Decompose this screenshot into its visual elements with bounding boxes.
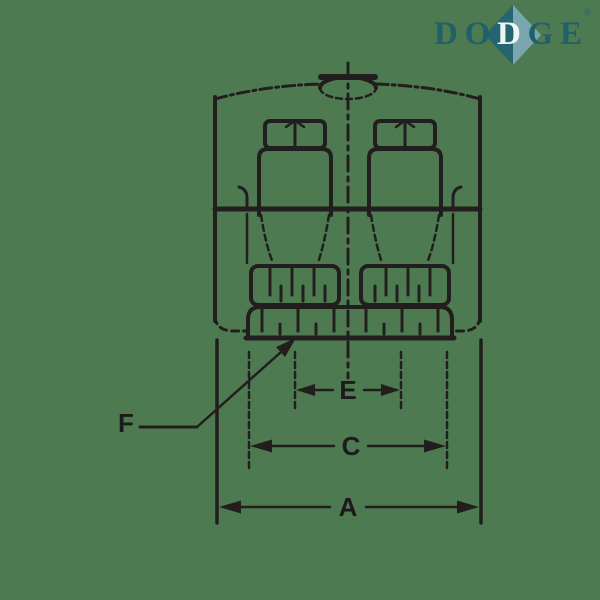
dodge-logo: D O D G E ® [434, 5, 590, 65]
dodge-wordmark: D O D G E [434, 14, 582, 54]
serrated-base-pad [246, 307, 454, 338]
arrowhead-c-left [250, 440, 272, 453]
dimension-label-e: E [339, 375, 356, 405]
arrowhead-a-left [219, 501, 241, 514]
logo-letter: D [497, 14, 521, 54]
dimension-c: C [249, 352, 447, 470]
cap-bolt-right [369, 121, 441, 263]
logo-letter: E [560, 14, 582, 54]
dimension-label-c: C [342, 431, 361, 461]
arrowhead-e-left [296, 384, 315, 396]
registered-trademark-symbol: ® [584, 7, 591, 17]
dimension-label-a: A [339, 492, 358, 522]
logo-letter: O [465, 14, 491, 54]
logo-letter: D [434, 14, 458, 54]
arrowhead-a-right [457, 501, 479, 514]
insert-edges [239, 187, 461, 263]
cap-bolt-left [259, 121, 331, 263]
dimension-label-f: F [118, 408, 134, 438]
arrowhead-c-right [424, 440, 446, 453]
serrated-pad-right [361, 266, 449, 305]
bearing-dimension-drawing: E C A F [0, 0, 600, 600]
logo-letter: G [528, 14, 554, 54]
serrated-pad-left [251, 266, 339, 305]
callout-f: F [118, 338, 296, 438]
arrowhead-e-right [381, 384, 400, 396]
drawing-canvas: E C A F [0, 0, 600, 600]
dimension-e: E [295, 352, 401, 412]
